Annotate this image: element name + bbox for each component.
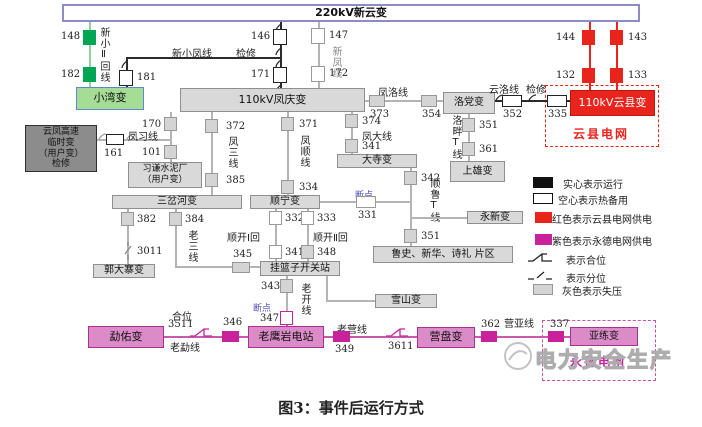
station-lushi-area: 鲁史、新华、诗礼 片区 bbox=[373, 246, 513, 263]
breaker-147-label: 147 bbox=[329, 30, 348, 41]
breaker-347 bbox=[280, 311, 293, 325]
legend-gray-label: 灰色表示失压 bbox=[562, 283, 622, 298]
breaker-133 bbox=[610, 68, 623, 83]
breaker-161-label: 161 bbox=[104, 148, 123, 159]
legend-hollow-label: 空心表示热备用 bbox=[558, 192, 628, 207]
line-label-laokai: 老开线 bbox=[299, 283, 309, 316]
breaker-348-label: 348 bbox=[317, 247, 336, 258]
line-label-yingya: 营亚线 bbox=[504, 315, 534, 330]
legend-open-switch-icon bbox=[528, 269, 552, 281]
line-label-shunkai1: 顺开Ⅰ回 bbox=[227, 229, 260, 244]
breaker-372-label: 372 bbox=[226, 121, 245, 132]
breaker-349 bbox=[333, 331, 350, 342]
breaker-143 bbox=[610, 30, 623, 45]
breaker-101-label: 101 bbox=[142, 147, 161, 158]
breaker-172 bbox=[311, 66, 325, 82]
breaker-332 bbox=[269, 211, 282, 225]
breaker-361 bbox=[462, 142, 475, 156]
breaker-133-label: 133 bbox=[628, 70, 647, 81]
legend-purple-swatch bbox=[535, 234, 552, 245]
line-label-laosan: 老三线 bbox=[186, 230, 196, 263]
breaker-351a bbox=[462, 118, 475, 132]
breaker-161 bbox=[106, 134, 124, 145]
breaker-361-label: 361 bbox=[479, 144, 498, 155]
legend-closed-switch-icon bbox=[528, 251, 552, 263]
breaker-362 bbox=[481, 331, 497, 342]
station-xiqian: 习谦水泥厂 （用户变） bbox=[128, 162, 202, 188]
breaker-341a bbox=[345, 139, 358, 153]
breaker-341b bbox=[269, 245, 282, 259]
breaker-182-label: 182 bbox=[61, 69, 80, 80]
breaker-170-label: 170 bbox=[142, 119, 161, 130]
open-hook-icon bbox=[120, 60, 129, 69]
line-label-laomeng: 老勐线 bbox=[170, 339, 200, 354]
breaker-382 bbox=[121, 212, 134, 226]
station-laoyingyan: 老鹰岩电站 bbox=[248, 326, 324, 348]
breaker-372 bbox=[205, 119, 218, 133]
figure-caption: 图3：事件后运行方式 bbox=[0, 397, 702, 418]
station-yunxian: 110kV云县变 bbox=[570, 90, 655, 116]
breaker-148 bbox=[83, 30, 96, 45]
one-line-diagram: 220kV新云变 148 182 新小Ⅱ回线 小湾变 181 新小凤线 检修 1… bbox=[0, 0, 702, 427]
station-sanchahe: 三岔河变 bbox=[112, 195, 242, 209]
breaker-172-label: 172 bbox=[329, 68, 348, 79]
maint-label-top: 检修 bbox=[236, 45, 256, 60]
breaker-348 bbox=[301, 245, 314, 259]
breaker-333-label: 333 bbox=[317, 213, 336, 224]
station-yongxin: 永新变 bbox=[467, 211, 523, 224]
breaker-148-label: 148 bbox=[61, 31, 80, 42]
breaker-144 bbox=[582, 30, 595, 45]
station-dasi: 大寺变 bbox=[337, 154, 417, 168]
breaker-343 bbox=[280, 279, 293, 293]
legend-purple-label: 紫色表示永德电网供电 bbox=[552, 233, 652, 248]
breaker-362-label: 362 bbox=[481, 319, 500, 330]
line-label-xinxiaofeng: 新小凤线 bbox=[172, 45, 212, 60]
bus-xinyun: 220kV新云变 bbox=[62, 4, 640, 22]
breaker-346-label: 346 bbox=[223, 317, 242, 328]
station-xiaowan: 小湾变 bbox=[76, 87, 144, 110]
breaker-335 bbox=[547, 95, 567, 107]
closed-switch-icon bbox=[386, 326, 408, 338]
breaker-337 bbox=[548, 331, 564, 342]
station-mengyou: 勐佑变 bbox=[88, 326, 164, 348]
breaker-342 bbox=[404, 171, 417, 185]
breaker-374-label: 374 bbox=[362, 116, 381, 127]
watermark-text: 电力安全生产 bbox=[535, 344, 673, 374]
breaker-371-label: 371 bbox=[299, 119, 318, 130]
open-hook-icon bbox=[528, 93, 537, 102]
breaker-146-label: 146 bbox=[251, 31, 270, 42]
line-label-xinxiao2: 新小Ⅱ回线 bbox=[98, 27, 108, 83]
breaker-132 bbox=[582, 68, 595, 83]
breaker-182 bbox=[83, 67, 96, 82]
breaker-181 bbox=[119, 70, 133, 86]
legend-hollow-swatch bbox=[533, 193, 553, 204]
legend-closed-label: 表示合位 bbox=[566, 252, 606, 267]
breaker-335-label: 335 bbox=[548, 109, 567, 120]
breaker-373 bbox=[369, 95, 385, 107]
breaker-345 bbox=[232, 262, 250, 273]
breaker-331-label: 331 bbox=[358, 210, 377, 221]
breaker-382-label: 382 bbox=[137, 214, 156, 225]
breaker-334-label: 334 bbox=[299, 182, 318, 193]
breaker-371 bbox=[281, 117, 294, 131]
switch-3011-label: 3011 bbox=[137, 246, 162, 257]
wire-yongxin bbox=[410, 217, 468, 219]
breaker-146 bbox=[273, 29, 287, 45]
breaker-143-label: 143 bbox=[628, 32, 647, 43]
line-label-fengshun: 凤顺线 bbox=[298, 135, 308, 168]
line-label-luopanT: 洛畔T线 bbox=[450, 115, 460, 160]
legend-gray-swatch bbox=[533, 284, 553, 295]
breaker-351b bbox=[404, 229, 417, 243]
breaker-334 bbox=[281, 180, 294, 194]
station-fengqing: 110kV凤庆变 bbox=[180, 88, 365, 112]
station-shangxiong: 上雄变 bbox=[450, 161, 505, 182]
legend-solid-label: 实心表示运行 bbox=[563, 176, 623, 191]
breaker-331 bbox=[356, 196, 376, 208]
line-label-yunluo: 云洛线 bbox=[489, 81, 519, 96]
breaker-341a-label: 341 bbox=[362, 141, 381, 152]
breaker-351a-label: 351 bbox=[479, 120, 498, 131]
breaker-351b-label: 351 bbox=[421, 231, 440, 242]
open-switch-icon bbox=[122, 242, 134, 260]
station-shunning: 顺宁变 bbox=[250, 195, 320, 209]
breaker-337-label: 337 bbox=[550, 319, 569, 330]
breaker-132-label: 132 bbox=[556, 70, 575, 81]
grid-label-yunxian: 云县电网 bbox=[573, 125, 629, 142]
breaker-384-label: 384 bbox=[185, 214, 204, 225]
legend-red-swatch bbox=[535, 212, 552, 223]
switch-3511-label: 3511 bbox=[168, 319, 193, 330]
breaker-343-label: 343 bbox=[261, 281, 280, 292]
breaker-144-label: 144 bbox=[556, 32, 575, 43]
breaker-346 bbox=[222, 331, 239, 342]
open-hook-icon bbox=[274, 47, 283, 56]
breaker-101 bbox=[164, 145, 177, 159]
station-gualanzi: 挂篮子开关站 bbox=[260, 261, 340, 276]
station-luodang: 洛党变 bbox=[443, 92, 495, 114]
breaker-352 bbox=[502, 95, 522, 107]
station-yunfeng-temp: 云凤高速 临时变 （用户变） 检修 bbox=[25, 125, 97, 172]
station-guodazhai: 郭大寨变 bbox=[93, 264, 155, 278]
breaker-385-label: 385 bbox=[226, 175, 245, 186]
breaker-384 bbox=[169, 212, 182, 226]
breaker-333 bbox=[301, 211, 314, 225]
station-yingpan: 营盘变 bbox=[417, 327, 475, 348]
breaker-374 bbox=[345, 114, 358, 128]
wire-xueshan-v bbox=[326, 276, 328, 301]
breaker-352-label: 352 bbox=[503, 109, 522, 120]
line-label-shunkai2: 顺开Ⅱ回 bbox=[313, 229, 348, 244]
breaker-354 bbox=[421, 95, 437, 107]
breaker-385 bbox=[205, 173, 218, 187]
breaker-181-label: 181 bbox=[137, 72, 156, 83]
breaker-345-label: 345 bbox=[233, 249, 252, 260]
wire-xueshan-h bbox=[326, 300, 375, 302]
watermark-logo-icon bbox=[502, 340, 534, 372]
breaker-171 bbox=[273, 67, 287, 83]
breaker-354-label: 354 bbox=[422, 109, 441, 120]
breaker-147 bbox=[311, 28, 325, 44]
legend-red-label: 红色表示云县电网供电 bbox=[552, 211, 652, 226]
breaker-170 bbox=[164, 117, 177, 131]
station-xueshan: 雪山变 bbox=[375, 294, 437, 308]
breaker-349-label: 349 bbox=[335, 344, 354, 355]
breaker-347-label: 347 bbox=[260, 313, 279, 324]
legend-solid-swatch bbox=[533, 177, 553, 188]
breaker-171-label: 171 bbox=[251, 69, 270, 80]
line-label-fengsan: 凤三线 bbox=[226, 136, 236, 169]
line-label-fengxi: 凤习线 bbox=[128, 128, 158, 143]
switch-3611-label: 3611 bbox=[388, 341, 413, 352]
